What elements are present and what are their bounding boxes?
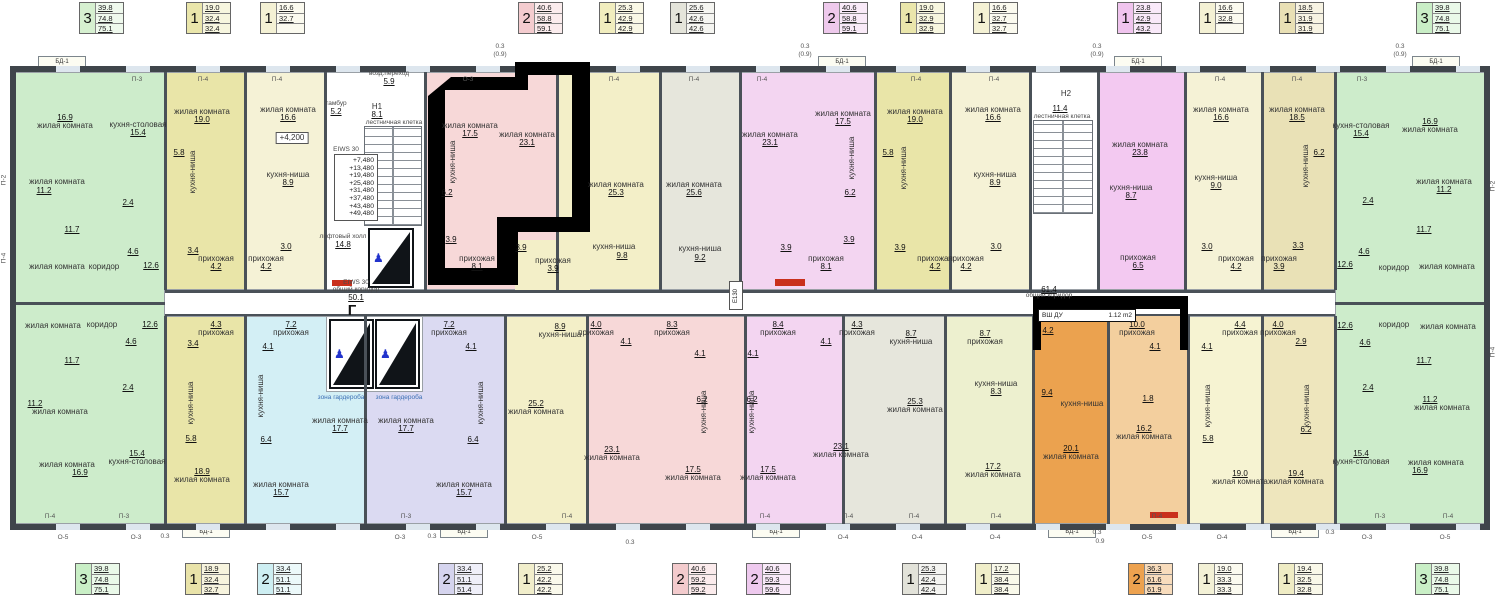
unit-badge[interactable]: 339.874.875.1 [1416, 2, 1461, 34]
room-area-label: 2.4 [122, 199, 133, 207]
room-name-label: П-2 [1491, 181, 1498, 191]
unit-badge[interactable]: 119.032.432.4 [186, 2, 231, 34]
dimension-label: 0.3 [625, 540, 634, 547]
badge-area-value: 16.6 [276, 3, 304, 13]
unit-badge[interactable]: 125.242.242.2 [518, 563, 563, 595]
room-area-label: 5.8 [1202, 435, 1213, 443]
badge-area-value: 61.6 [1144, 574, 1172, 584]
badge-area-value: 42.6 [686, 23, 714, 33]
badge-area-value: 36.3 [1144, 564, 1172, 574]
wall [504, 316, 507, 524]
outer-wall-bottom [10, 524, 1490, 530]
badge-room-count: 2 [747, 564, 762, 594]
room-area-label: 11.2 [37, 187, 52, 195]
unit-badge[interactable]: 240.659.259.2 [672, 563, 717, 595]
unit-badge[interactable]: 125.342.442.4 [902, 563, 947, 595]
dimension-label: 0.3 [160, 534, 169, 541]
wall [1107, 316, 1110, 524]
badge-area-value: 40.6 [688, 564, 716, 574]
unit-badge[interactable]: 119.032.932.9 [900, 2, 945, 34]
room-area-label: 6.2 [844, 189, 855, 197]
room-area-label: 16.6 [280, 114, 296, 122]
staircase [1033, 120, 1093, 214]
wall [1029, 72, 1032, 290]
outer-wall-top [10, 66, 1490, 72]
room-name-label: жилая комната [1268, 478, 1324, 486]
room-area-label: 3.9 [1273, 263, 1284, 271]
room-area-label: 12.6 [143, 262, 159, 270]
room-area-label: 3.0 [280, 243, 291, 251]
room-area-label: 6.4 [260, 436, 271, 444]
badge-room-count: 2 [258, 564, 273, 594]
badge-area-value: 74.8 [1431, 574, 1459, 584]
badge-area-value: 74.8 [91, 574, 119, 584]
badge-area-value: 32.7 [276, 13, 304, 23]
room-name-label: жилая комната [887, 406, 943, 414]
room-name-label: прихожая [967, 338, 1003, 346]
badge-room-count: 2 [1129, 564, 1144, 594]
window-type-label: П-4 [562, 514, 572, 521]
window-type-label: П-4 [689, 77, 699, 84]
room-area-label: 11.2 [1437, 186, 1452, 194]
window-type-label: О-4 [912, 535, 923, 542]
room-area-label: 6.5 [1132, 262, 1143, 270]
room-area-label: 15.4 [130, 129, 146, 137]
room-name-label: общий коридор [1026, 293, 1073, 300]
floor-level-value: +25,480 [338, 180, 374, 188]
room-area-label: 4.2 [929, 263, 940, 271]
room-area-label: 16.6 [985, 114, 1001, 122]
room-name-label: прихожая [654, 329, 690, 337]
apt-3room-bottom-right[interactable] [1335, 304, 1490, 524]
room-name-label: прихожая [1119, 329, 1155, 337]
badge-area-value: 51.1 [273, 584, 301, 594]
room-name-label: жилая комната [665, 474, 721, 482]
room-name-label: кухня-ниша [1303, 385, 1311, 428]
badge-area-value: 75.1 [1432, 23, 1460, 33]
room-area-label: 25.3 [608, 189, 624, 197]
badge-area-value: 19.0 [916, 3, 944, 13]
room-name-label: коридор [1379, 264, 1410, 272]
unit-badge[interactable]: 117.238.438.4 [975, 563, 1020, 595]
apt-1room-17-bottom[interactable] [945, 316, 1033, 524]
room-area-label: 8.9 [282, 179, 293, 187]
room-name-label: коридор [1379, 321, 1410, 329]
badge-area-value: 59.6 [762, 584, 790, 594]
badge-area-value: 42.2 [534, 584, 562, 594]
badge-room-count: 1 [1280, 3, 1295, 33]
room-name-label: прихожая [1260, 329, 1296, 337]
badge-room-count: 1 [903, 564, 918, 594]
badge-room-count: 1 [1118, 3, 1133, 33]
unit-badge[interactable]: 339.874.875.1 [75, 563, 120, 595]
apt-2room-violet-bottom[interactable] [745, 316, 843, 524]
apt-1room-19b-bottom[interactable] [1262, 316, 1335, 524]
badge-area-value: 42.9 [1133, 13, 1161, 23]
window-type-label: О-5 [1142, 535, 1153, 542]
room-area-label: 8.1 [471, 263, 482, 271]
unit-badge[interactable]: 119.432.532.8 [1278, 563, 1323, 595]
room-name-label: жилая комната [584, 454, 640, 462]
badge-area-value [1215, 23, 1243, 33]
unit-badge[interactable]: 118.932.432.7 [185, 563, 230, 595]
badge-room-count: 1 [1279, 564, 1294, 594]
wall [1187, 316, 1190, 524]
room-area-label: 4.2 [1230, 263, 1241, 271]
dimension-label: 0.3 [495, 44, 504, 51]
window-type-label: П-3 [1357, 77, 1367, 84]
badge-area-value: 23.8 [1133, 3, 1161, 13]
badge-room-count: 1 [1199, 564, 1214, 594]
floor-level-value: +13,480 [338, 165, 374, 173]
room-area-label: 23.1 [519, 139, 535, 147]
room-area-label: 19.0 [907, 116, 923, 124]
unit-badge[interactable]: 116.632.7 [260, 2, 305, 34]
elevator-shaft: ♟ [329, 319, 374, 389]
window-type-label: П-4 [989, 77, 999, 84]
room-area-label: 3.0 [1201, 243, 1212, 251]
room-area-label: 11.7 [1417, 226, 1432, 234]
apt-2room-pink-bottom[interactable] [587, 316, 745, 524]
apt-1room-18-bottom[interactable] [165, 316, 245, 524]
room-area-label: 15.4 [1353, 130, 1369, 138]
window-type-label: П-4 [1152, 514, 1162, 521]
badge-area-value: 59.2 [688, 574, 716, 584]
room-area-label: 8.1 [820, 263, 831, 271]
floor-level-value: +7,480 [338, 157, 374, 165]
outer-wall-right [1484, 66, 1490, 530]
badge-room-count: 3 [80, 3, 95, 33]
room-area-label: 4.2 [1042, 327, 1053, 335]
window-type-label: О-4 [990, 535, 1001, 542]
window-type-label: О-5 [532, 535, 543, 542]
badge-area-value: 17.2 [991, 564, 1019, 574]
room-area-label: 5.8 [882, 149, 893, 157]
badge-room-count: 2 [519, 3, 534, 33]
badge-area-value [276, 23, 304, 33]
room-area-label: 17.7 [398, 425, 414, 433]
badge-area-value: 39.8 [1431, 564, 1459, 574]
unit-badge[interactable]: 339.874.875.1 [79, 2, 124, 34]
window-type-label: П-3 [1375, 514, 1385, 521]
room-name-label: кухня-ниша [539, 331, 582, 339]
room-area-label: 23.8 [1132, 149, 1148, 157]
room-name-label: прихожая [431, 329, 467, 337]
room-name-label: EIWS 30 [333, 147, 359, 154]
elevator-icon: ♟ [373, 251, 384, 265]
room-area-label: 8.9 [989, 179, 1000, 187]
floor-level-value: +37,480 [338, 195, 374, 203]
room-name-label: жилая комната [965, 471, 1021, 479]
unit-badge[interactable]: 240.658.859.1 [518, 2, 563, 34]
room-area-label: 5.8 [185, 435, 196, 443]
room-name-label: жилая комната [1043, 453, 1099, 461]
badge-area-value: 32.7 [989, 23, 1017, 33]
badge-area-value: 18.9 [201, 564, 229, 574]
badge-area-value: 38.4 [991, 574, 1019, 584]
badge-area-value: 25.3 [615, 3, 643, 13]
apt-1room-25-bottom[interactable] [505, 316, 587, 524]
apt-1room-19-bottom[interactable] [1188, 316, 1262, 524]
room-name-label: +4,200 [276, 132, 309, 144]
room-name-label: П-4 [1491, 347, 1498, 357]
badge-area-value: 75.1 [95, 23, 123, 33]
unit-badge[interactable]: 125.342.942.9 [599, 2, 644, 34]
room-area-label: 9.0 [1210, 182, 1221, 190]
badge-area-value: 59.2 [688, 584, 716, 594]
unit-badge[interactable]: 240.659.359.6 [746, 563, 791, 595]
room-name-label: H2 [1061, 90, 1071, 98]
room-name-label: кухня-ниша [257, 375, 265, 418]
badge-area-value: 40.6 [839, 3, 867, 13]
window-type-label: О-3 [463, 77, 474, 84]
badge-area-value: 42.2 [534, 574, 562, 584]
window-type-label: О-5 [1440, 535, 1451, 542]
room-area-label: 3.9 [515, 244, 526, 252]
room-name-label: лестничная клетка [1034, 114, 1090, 121]
outer-wall-left [10, 66, 16, 530]
window-type-label: П-4 [843, 514, 853, 521]
elevator-icon: ♟ [380, 347, 391, 361]
room-name-label: прихожая [760, 329, 796, 337]
floor-level-value: +31,480 [338, 187, 374, 195]
badge-area-value: 25.6 [686, 3, 714, 13]
badge-room-count: 1 [600, 3, 615, 33]
badge-room-count: 1 [186, 564, 201, 594]
elevator-shaft: ♟ [368, 228, 414, 288]
orange-unit-light-half [1108, 316, 1188, 524]
room-name-label: кухня-ниша [187, 382, 195, 425]
dimension-label: 0.3 [1325, 530, 1334, 537]
badge-area-value: 59.1 [839, 23, 867, 33]
room-area-label: 16.6 [1213, 114, 1229, 122]
room-area-label: 6.2 [1313, 149, 1324, 157]
room-area-label: 5.9 [383, 78, 394, 86]
wall [1335, 302, 1490, 305]
room-area-label: 1.8 [1142, 395, 1153, 403]
wall [1334, 316, 1337, 524]
wall [659, 72, 662, 290]
unit-badge[interactable]: 119.033.333.3 [1198, 563, 1243, 595]
room-area-label: 3.9 [894, 244, 905, 252]
room-area-label: 4.1 [262, 343, 273, 351]
wall [874, 72, 877, 290]
room-area-label: 5.2 [330, 108, 341, 116]
wall [165, 314, 1335, 317]
badge-area-value: 51.1 [273, 574, 301, 584]
badge-area-value: 39.8 [91, 564, 119, 574]
badge-area-value: 32.9 [916, 23, 944, 33]
badge-area-value: 33.4 [273, 564, 301, 574]
room-name-label: кухня-ниша [189, 151, 197, 194]
wall [424, 72, 427, 290]
badge-room-count: 1 [671, 3, 686, 33]
dimension-label: 0.3 [800, 44, 809, 51]
apt-1room-25g-bottom[interactable] [843, 316, 945, 524]
badge-room-count: 1 [261, 3, 276, 33]
room-area-label: 12.6 [1337, 261, 1353, 269]
wall [244, 72, 247, 290]
badge-area-value: 32.8 [1294, 584, 1322, 594]
room-area-label: 8.3 [990, 388, 1001, 396]
unit-badge[interactable]: 236.361.661.9 [1128, 563, 1173, 595]
window-type-label: П-4 [1292, 77, 1302, 84]
dimension-label: 0.9 [1095, 539, 1104, 546]
room-name-label: жилая комната [174, 476, 230, 484]
room-name-label: зона гардероба [376, 395, 423, 402]
window-type-label: П-4 [45, 514, 55, 521]
unit-badge[interactable]: 233.451.151.1 [257, 563, 302, 595]
badge-area-value: 25.3 [918, 564, 946, 574]
window-type-label: П-3 [401, 514, 411, 521]
wall [1184, 72, 1187, 290]
vent-shaft-box: ВШ ДУ1.12 m2 [1038, 309, 1136, 322]
badge-area-value: 74.8 [1432, 13, 1460, 23]
unit-badge[interactable]: 233.451.151.4 [438, 563, 483, 595]
window-type-label: П-4 [991, 514, 1001, 521]
room-area-label: 6.4 [467, 436, 478, 444]
wall [1261, 316, 1264, 524]
room-name-label: П-4 [2, 253, 9, 263]
unit-badge[interactable]: 240.658.859.1 [823, 2, 868, 34]
badge-area-value: 42.6 [686, 13, 714, 23]
wall [944, 316, 947, 524]
dimension-label: (0.9) [1090, 52, 1103, 59]
room-name-label: Г [348, 303, 357, 319]
dimension-label: (0.9) [798, 52, 811, 59]
window-type-label: О-5 [58, 535, 69, 542]
unit-badge[interactable]: 118.531.931.9 [1279, 2, 1324, 34]
badge-area-value: 32.7 [989, 13, 1017, 23]
floor-level-value: +43,480 [338, 203, 374, 211]
badge-room-count: 3 [76, 564, 91, 594]
badge-area-value: 59.3 [762, 574, 790, 584]
fire-wall-marker: E130 [729, 281, 743, 310]
floor-levels-list: +7,480+13,480+19,480+25,480+31,480+37,48… [334, 154, 378, 221]
badge-room-count: 1 [974, 3, 989, 33]
room-area-label: 15.7 [273, 489, 289, 497]
badge-room-count: 1 [901, 3, 916, 33]
room-area-label: 4.1 [1201, 343, 1212, 351]
wall [842, 316, 845, 524]
badge-area-value: 16.6 [1215, 3, 1243, 13]
badge-area-value: 42.9 [615, 13, 643, 23]
room-name-label: кухня-столовая [109, 458, 166, 466]
room-area-label: 9.2 [694, 254, 705, 262]
unit-badge[interactable]: 116.632.732.7 [973, 2, 1018, 34]
window-type-label: П-4 [1443, 514, 1453, 521]
unit-badge[interactable]: 125.642.642.6 [670, 2, 715, 34]
room-name-label: жилая комната [1402, 126, 1458, 134]
window-type-label: О-3 [131, 535, 142, 542]
dimension-label: 0.3 [1395, 44, 1404, 51]
room-area-label: 3.4 [187, 340, 198, 348]
window-type-label: П-4 [911, 77, 921, 84]
badge-area-value: 75.1 [1431, 584, 1459, 594]
badge-area-value: 39.8 [95, 3, 123, 13]
unit-badge[interactable]: 116.632.8 [1199, 2, 1244, 34]
badge-area-value: 75.1 [91, 584, 119, 594]
wall [739, 72, 742, 290]
badge-area-value: 32.7 [201, 584, 229, 594]
room-name-label: кухня-ниша [1061, 400, 1104, 408]
badge-area-value: 18.5 [1295, 3, 1323, 13]
room-area-label: 4.2 [210, 263, 221, 271]
wall [586, 316, 589, 524]
vent-shaft-area: 1.12 m2 [1109, 312, 1133, 319]
window-type-label: П-4 [272, 77, 282, 84]
window-type-label: О-4 [1217, 535, 1228, 542]
badge-room-count: 2 [439, 564, 454, 594]
badge-area-value: 74.8 [95, 13, 123, 23]
badge-area-value: 19.0 [1214, 564, 1242, 574]
wall [164, 72, 167, 290]
window-type-label: П-4 [198, 77, 208, 84]
room-area-label: 2.4 [1362, 197, 1373, 205]
room-area-label: 16.9 [1412, 467, 1428, 475]
window-type-label: П-4 [609, 77, 619, 84]
badge-area-value: 32.4 [202, 23, 230, 33]
room-name-label: жилая комната [1116, 433, 1172, 441]
room-area-label: 6.2 [441, 189, 452, 197]
badge-area-value: 32.8 [1215, 13, 1243, 23]
room-area-label: 6.2 [1300, 426, 1311, 434]
room-name-label: жилая комната [1212, 478, 1268, 486]
badge-room-count: 3 [1417, 3, 1432, 33]
room-name-label: коридор [89, 263, 120, 271]
room-area-label: 4.2 [960, 263, 971, 271]
room-area-label: 4.1 [620, 338, 631, 346]
unit-badge[interactable]: 339.874.875.1 [1415, 563, 1460, 595]
badge-area-value: 19.4 [1294, 564, 1322, 574]
room-area-label: 17.5 [835, 118, 851, 126]
room-area-label: 17.7 [332, 425, 348, 433]
room-area-label: 2.4 [1362, 384, 1373, 392]
room-name-label: прихожая [198, 329, 234, 337]
room-name-label: кухня-ниша [890, 338, 933, 346]
badge-room-count: 1 [1200, 3, 1215, 33]
floor-plan-page: 339.874.875.1119.032.432.4116.632.7240.6… [0, 0, 1500, 597]
room-area-label: 3.9 [445, 236, 456, 244]
common-corridor [165, 290, 1335, 316]
room-name-label: кухня-ниша [1204, 385, 1212, 428]
room-area-label: 15.7 [456, 489, 472, 497]
room-area-label: 11.7 [1417, 357, 1432, 365]
badge-area-value: 32.4 [202, 13, 230, 23]
elevator-icon: ♟ [334, 347, 345, 361]
room-area-label: 9.4 [1041, 389, 1052, 397]
room-area-label: 12.6 [1337, 322, 1353, 330]
room-name-label: кухня-ниша [900, 147, 908, 190]
room-name-label: прихожая [273, 329, 309, 337]
room-name-label: коридор [87, 321, 118, 329]
badge-area-value: 38.4 [991, 584, 1019, 594]
window-type-label: П-4 [760, 514, 770, 521]
room-name-label: жилая комната [37, 122, 93, 130]
badge-room-count: 3 [1416, 564, 1431, 594]
room-name-label: кухня-ниша [593, 243, 636, 251]
room-area-label: 23.1 [762, 139, 778, 147]
floor-level-value: +19,480 [338, 172, 374, 180]
badge-area-value: 42.4 [918, 574, 946, 584]
room-name-label: кухня-ниша [700, 391, 708, 434]
room-area-label: 5.8 [173, 149, 184, 157]
room-name-label: кухня-ниша [477, 382, 485, 425]
room-area-label: 4.6 [127, 248, 138, 256]
room-area-label: 12.6 [142, 321, 158, 329]
unit-badge[interactable]: 123.842.943.2 [1117, 2, 1162, 34]
badge-room-count: 1 [519, 564, 534, 594]
